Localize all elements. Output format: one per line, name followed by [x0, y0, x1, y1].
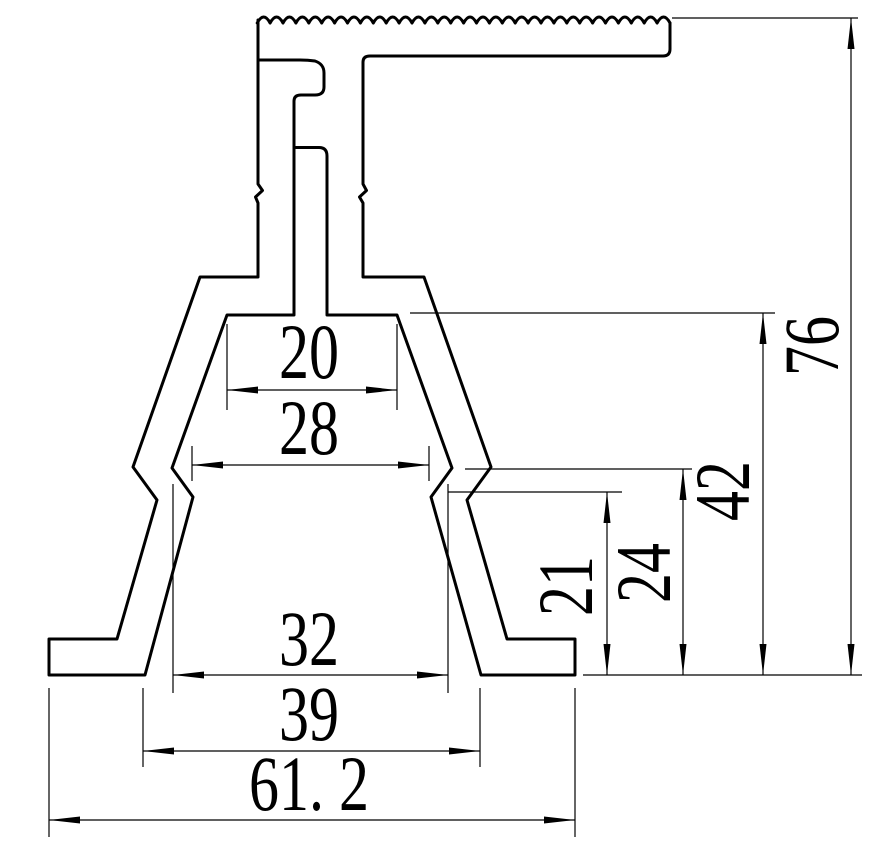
serrated-top-edge — [257, 17, 670, 23]
dimension-lines — [49, 18, 862, 837]
profile-drawing-svg — [0, 0, 890, 867]
dim-label-20: 20 — [279, 313, 339, 391]
dim-21-arrow-bottom — [604, 644, 611, 675]
dim-label-24: 24 — [605, 543, 683, 603]
dim-20-arrow-right — [366, 387, 397, 394]
dim-39-arrow-left — [143, 748, 174, 755]
dim-label-76: 76 — [773, 316, 851, 376]
dim-label-32: 32 — [279, 600, 339, 678]
dim-42-arrow-bottom — [760, 644, 767, 675]
dim-label-21: 21 — [527, 556, 605, 616]
dim-28-arrow-left — [192, 462, 223, 469]
dim-76-arrow-top — [848, 18, 855, 49]
dim-28-arrow-right — [398, 462, 429, 469]
dim-42-arrow-top — [760, 313, 767, 344]
dim-label-28: 28 — [279, 389, 339, 467]
dim-61-2-arrow-right — [544, 817, 575, 824]
dim-61-2-arrow-left — [49, 817, 80, 824]
dim-20-arrow-left — [227, 387, 258, 394]
dim-label-42: 42 — [684, 461, 762, 521]
dim-21-arrow-top — [604, 492, 611, 523]
dim-label-61-2: 61. 2 — [249, 745, 369, 823]
dim-76-arrow-bottom — [848, 644, 855, 675]
dim-39-arrow-right — [449, 748, 480, 755]
dim-24-arrow-bottom — [680, 644, 687, 675]
dim-32-arrow-right — [417, 672, 448, 679]
technical-drawing-canvas: 20 28 32 39 61. 2 21 24 42 76 — [0, 0, 890, 867]
dim-32-arrow-left — [173, 672, 204, 679]
